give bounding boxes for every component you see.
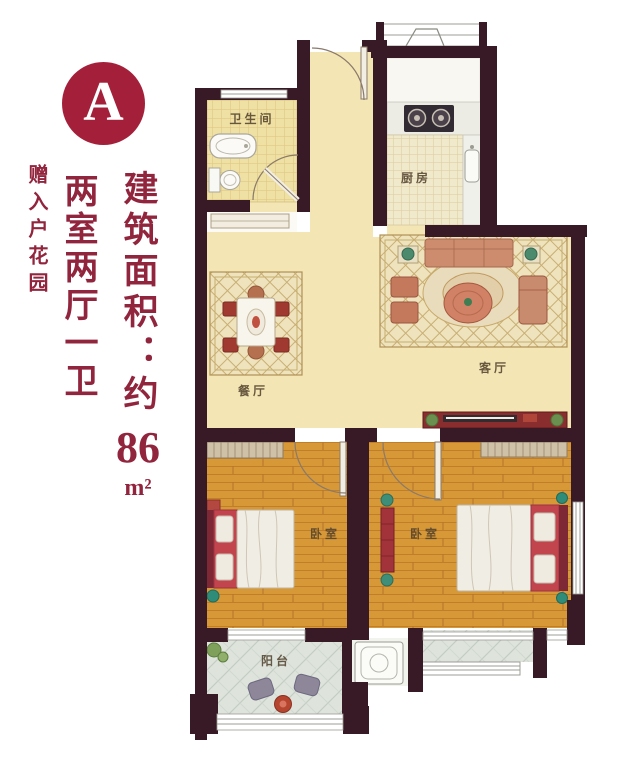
sink xyxy=(465,150,479,182)
bed-duvet xyxy=(457,505,531,591)
chaise xyxy=(519,276,547,324)
pillow xyxy=(216,516,233,542)
bay-window xyxy=(422,662,520,675)
bedroom-right-door-leaf xyxy=(435,442,441,500)
room-label-living: 客厅 xyxy=(478,360,509,375)
plant xyxy=(551,414,563,426)
pillow xyxy=(534,555,555,583)
area-column: 建筑面积：约 86 m² xyxy=(110,170,166,500)
plant xyxy=(218,652,228,662)
bedroom-side-window xyxy=(573,502,583,594)
washing-machine xyxy=(355,642,403,684)
bonus-text: 赠入户花园 xyxy=(26,164,46,299)
page: A 建筑面积：约 86 m² 两室两厅一卫 赠入户花园 xyxy=(0,0,640,776)
wardrobe xyxy=(481,442,567,457)
room-label-dining: 餐厅 xyxy=(238,383,268,398)
plant xyxy=(207,590,219,602)
wardrobe xyxy=(207,442,283,458)
toilet-bowl xyxy=(220,171,240,190)
plant xyxy=(381,494,393,506)
pillow xyxy=(534,513,555,541)
layout-text: 两室两厅一卫 xyxy=(60,173,94,401)
room-bedroom-right xyxy=(369,442,571,628)
area-value: 86 xyxy=(116,426,160,470)
plant xyxy=(402,248,414,260)
plant xyxy=(557,593,568,604)
room-label-kitchen: 厨房 xyxy=(401,170,431,185)
room-balcony xyxy=(205,638,343,716)
bed-headboard xyxy=(207,510,214,588)
dining-chair xyxy=(223,302,238,316)
bed-headboard xyxy=(559,505,568,591)
armchair xyxy=(391,302,418,323)
area-label: 建筑面积：约 xyxy=(121,170,156,416)
plant xyxy=(381,574,393,586)
floorplan-svg: 卫生间 厨房 餐厅 客厅 卧室 卧室 阳台 xyxy=(185,10,597,750)
toilet-tank xyxy=(209,168,220,192)
dining-chair xyxy=(274,302,289,316)
entry-door-leaf xyxy=(361,47,367,99)
bonus-column: 赠入户花园 xyxy=(26,164,46,299)
room-living xyxy=(373,235,571,428)
bedroom-left-door-leaf xyxy=(340,442,346,496)
unit-badge: A xyxy=(62,62,145,145)
sofa xyxy=(425,239,513,267)
layout-column: 两室两厅一卫 xyxy=(60,173,94,401)
unit-badge-letter: A xyxy=(83,74,123,130)
room-label-bedroom-left: 卧室 xyxy=(310,526,340,541)
room-label-bedroom-right: 卧室 xyxy=(410,526,440,541)
plant xyxy=(426,414,438,426)
plant xyxy=(525,248,537,260)
balcony-railing xyxy=(217,714,343,730)
dining-chair xyxy=(223,338,238,352)
area-unit: m² xyxy=(124,476,151,500)
room-label-bathroom: 卫生间 xyxy=(229,111,274,126)
bed-duvet xyxy=(237,510,294,588)
pillow xyxy=(216,554,233,580)
room-label-balcony: 阳台 xyxy=(261,653,291,668)
dining-chair xyxy=(274,338,289,352)
plant xyxy=(557,493,568,504)
floorplan: 卫生间 厨房 餐厅 客厅 卧室 卧室 阳台 xyxy=(185,10,597,755)
laundry-nook xyxy=(352,638,408,686)
room-dining xyxy=(205,212,373,428)
armchair xyxy=(391,277,418,297)
